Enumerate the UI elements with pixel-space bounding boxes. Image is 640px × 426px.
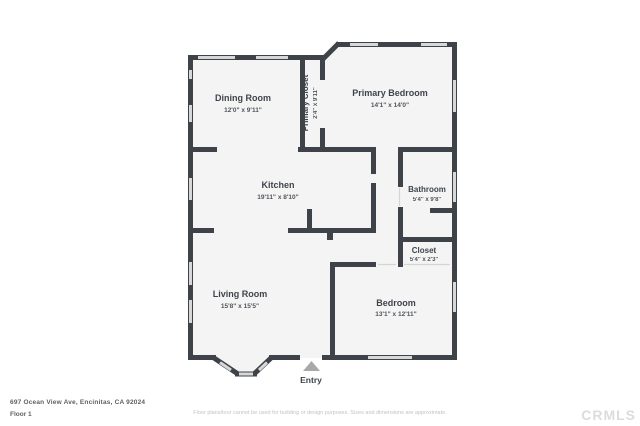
room-dims: 2'4" x 9'11" — [313, 87, 319, 119]
window — [256, 56, 288, 59]
window — [198, 56, 235, 59]
disclaimer-text: Floor plans/tour cannot be used for buil… — [0, 410, 640, 416]
wall — [288, 228, 376, 233]
wall — [320, 58, 325, 80]
wall — [330, 262, 376, 267]
window — [421, 43, 447, 46]
wall — [327, 233, 333, 240]
window — [350, 43, 378, 46]
room-dims: 5'4" x 2'3" — [410, 257, 439, 263]
window — [189, 178, 192, 200]
room-dims: 15'8" x 15'5" — [221, 303, 259, 310]
window — [189, 300, 192, 323]
room-dims: 5'4" x 9'8" — [413, 197, 442, 203]
window — [189, 105, 192, 122]
window — [453, 282, 456, 312]
wall — [330, 262, 335, 360]
room-name: Primary Closet — [301, 74, 310, 131]
wall — [188, 228, 214, 233]
wall — [320, 128, 325, 152]
entry-label: Entry — [300, 375, 322, 385]
room-name: Living Room — [213, 289, 268, 299]
room-name: Bedroom — [376, 298, 416, 308]
window — [189, 70, 192, 79]
floor-plan-page: Dining Room 12'0" x 9'11" Primary Closet… — [0, 0, 640, 426]
window — [453, 172, 456, 202]
room-name: Kitchen — [261, 180, 294, 190]
wall — [398, 237, 457, 242]
property-address: 697 Ocean View Ave, Encinitas, CA 92024 — [10, 399, 145, 406]
room-dims: 19'11" x 8'10" — [257, 194, 298, 201]
wall — [398, 147, 403, 187]
room-name: Primary Bedroom — [352, 88, 428, 98]
wall — [269, 355, 300, 360]
wall — [430, 208, 454, 213]
window — [368, 356, 412, 359]
wall — [307, 209, 312, 228]
wall — [398, 147, 457, 152]
floor-plan-drawing: Dining Room 12'0" x 9'11" Primary Closet… — [0, 0, 640, 426]
wall — [188, 147, 217, 152]
window — [189, 262, 192, 285]
wall — [188, 355, 216, 360]
entry-triangle-icon — [303, 361, 320, 371]
window — [453, 80, 456, 112]
room-dims: 13'1" x 12'11" — [375, 311, 416, 318]
room-name: Dining Room — [215, 93, 271, 103]
wall — [371, 147, 376, 174]
wall — [298, 147, 376, 152]
room-dims: 14'1" x 14'0" — [371, 102, 409, 109]
room-name: Bathroom — [408, 185, 446, 194]
room-label-closet: Closet 5'4" x 2'3" — [410, 246, 439, 263]
wall — [371, 183, 376, 233]
crmls-watermark: CRMLS — [581, 407, 636, 423]
room-name: Closet — [412, 246, 437, 255]
room-dims: 12'0" x 9'11" — [224, 107, 262, 114]
